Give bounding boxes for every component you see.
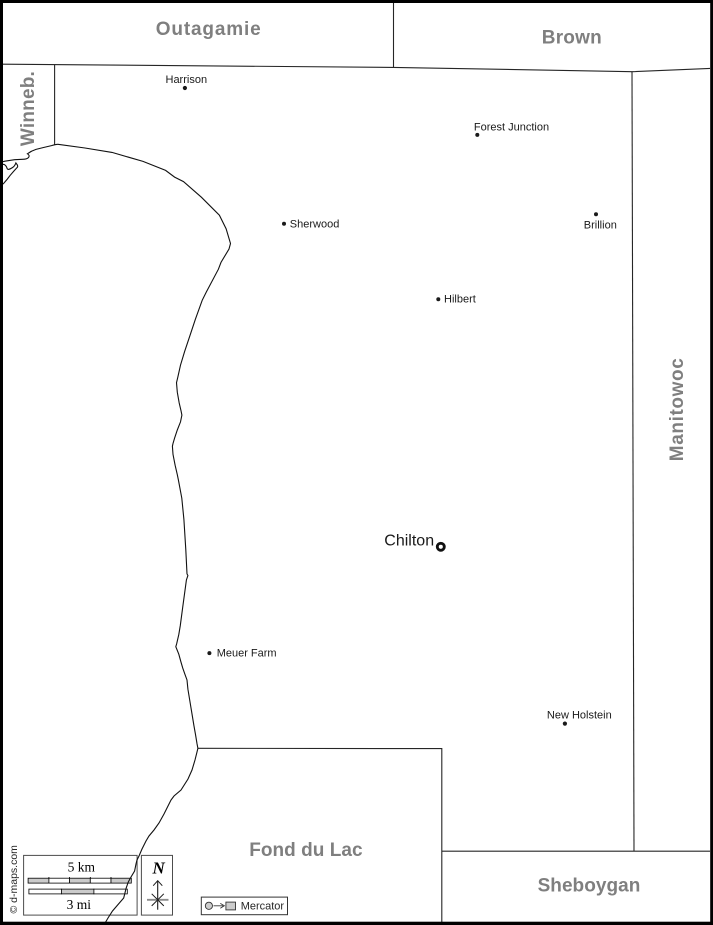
svg-text:Brillion: Brillion [584,219,617,231]
svg-text:Winneb.: Winneb. [18,71,39,146]
svg-text:Sherwood: Sherwood [290,219,340,231]
svg-text:New Holstein: New Holstein [547,710,612,722]
svg-text:Harrison: Harrison [166,74,208,86]
svg-text:Sheboygan: Sheboygan [538,875,641,896]
svg-text:N: N [152,859,166,878]
svg-text:Chilton: Chilton [384,532,434,549]
svg-text:Outagamie: Outagamie [156,19,262,40]
svg-text:© d-maps.com: © d-maps.com [8,845,20,914]
svg-text:Forest Junction: Forest Junction [474,122,549,134]
svg-text:Fond du Lac: Fond du Lac [249,840,363,861]
svg-text:Meuer Farm: Meuer Farm [217,648,277,660]
svg-text:Mercator: Mercator [241,900,285,912]
svg-text:Brown: Brown [542,27,602,48]
svg-text:Hilbert: Hilbert [444,294,476,306]
svg-text:5 km: 5 km [68,860,96,875]
svg-text:Manitowoc: Manitowoc [667,358,688,462]
svg-text:3 mi: 3 mi [67,897,92,912]
